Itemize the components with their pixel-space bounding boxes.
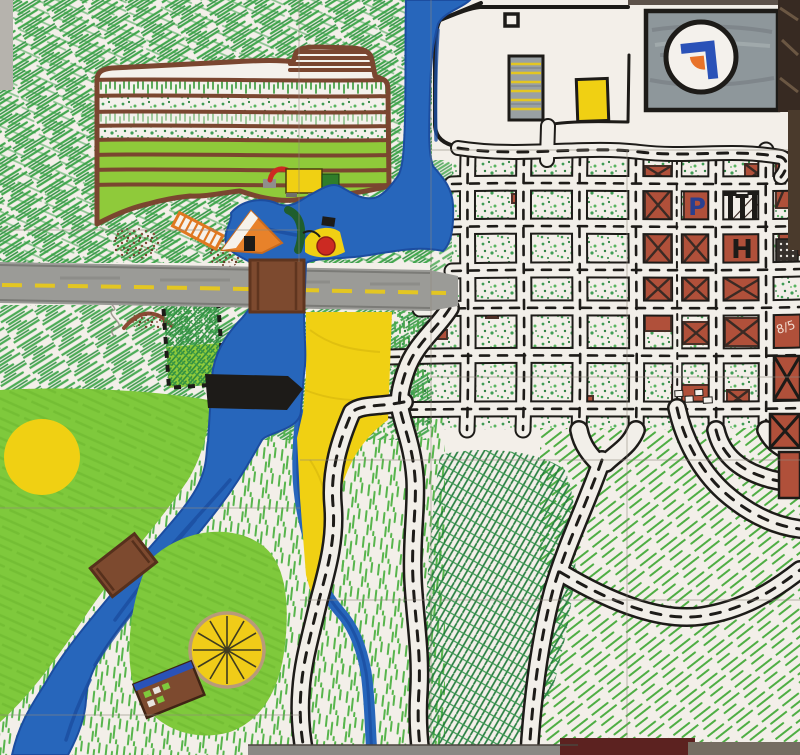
parking-label: P — [688, 193, 706, 221]
map-canvas: P H Polizei 8/5 — [0, 0, 800, 755]
tent-door — [244, 236, 255, 251]
striped-building — [509, 56, 543, 120]
bridge-icon — [250, 260, 304, 312]
highway — [0, 262, 458, 311]
hospital-label: H — [731, 235, 753, 265]
city-block-red — [779, 452, 800, 498]
yellow-building — [576, 78, 608, 121]
pond-yellow-circle — [4, 419, 80, 495]
crate-icon — [321, 216, 335, 227]
table-edge-red — [560, 738, 695, 755]
mound-speckle — [130, 312, 166, 330]
dam-icon — [205, 374, 303, 410]
table-edge-right — [688, 742, 800, 755]
hand-drawn-map-photo: P H Polizei 8/5 — [0, 0, 800, 755]
ferris-wheel-icon — [190, 613, 264, 687]
photo-bg-topedge — [628, 0, 778, 5]
dirt-patch — [112, 227, 160, 259]
photo-bg-right — [788, 110, 800, 250]
photo-bg-topleft — [0, 0, 13, 90]
buoy-icon — [317, 237, 335, 255]
city-block-red — [645, 315, 671, 331]
table-edge-gray — [248, 745, 578, 755]
logo-panel — [646, 11, 778, 110]
photo-bg-topright — [778, 0, 800, 112]
